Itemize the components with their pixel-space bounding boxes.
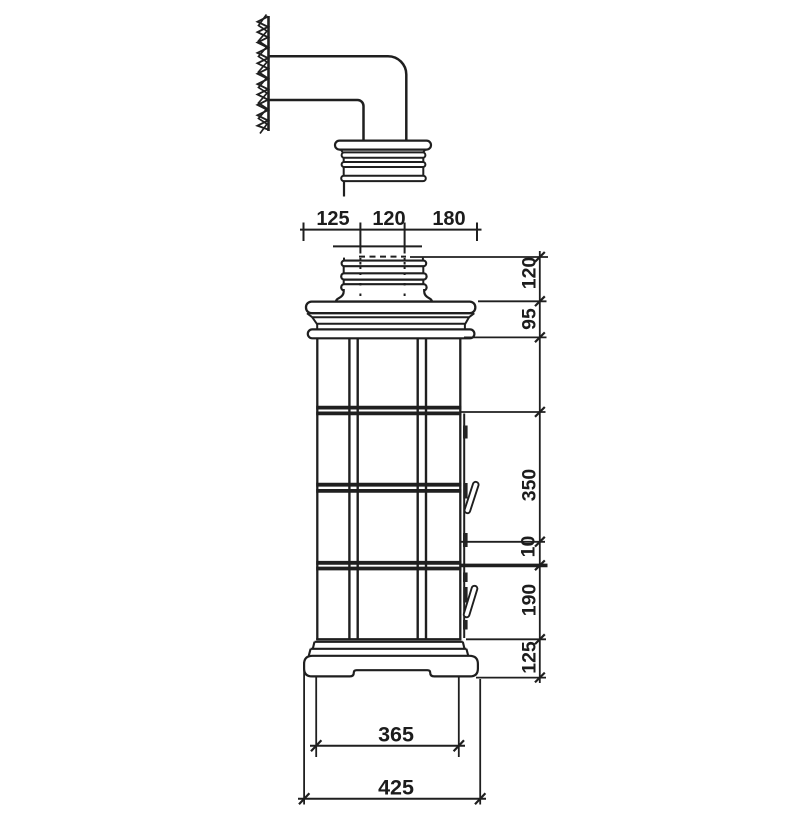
- svg-text:10: 10: [518, 536, 540, 558]
- svg-text:180: 180: [432, 208, 465, 230]
- svg-text:365: 365: [378, 723, 414, 747]
- svg-text:350: 350: [519, 469, 541, 502]
- svg-text:190: 190: [519, 584, 541, 617]
- svg-text:120: 120: [372, 208, 405, 230]
- svg-text:125: 125: [519, 641, 541, 674]
- svg-text:425: 425: [378, 776, 414, 800]
- svg-text:125: 125: [316, 208, 349, 230]
- svg-text:95: 95: [519, 308, 541, 330]
- svg-text:120: 120: [519, 257, 541, 290]
